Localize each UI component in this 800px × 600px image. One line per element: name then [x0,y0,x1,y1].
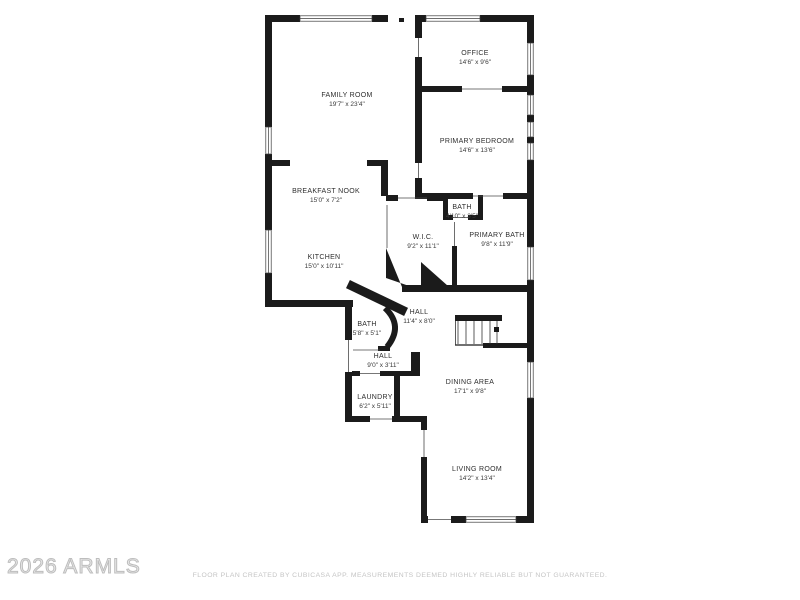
stairs [455,315,534,348]
disclaimer-text: FLOOR PLAN CREATED BY CUBICASA APP. MEAS… [0,572,800,579]
walls [265,15,534,523]
floor-plan-page: FAMILY ROOM 19'7" x 23'4" OFFICE 14'6" x… [0,0,800,600]
windows [266,16,533,522]
angled-walls [352,248,448,347]
floor-plan-drawing [0,0,800,600]
